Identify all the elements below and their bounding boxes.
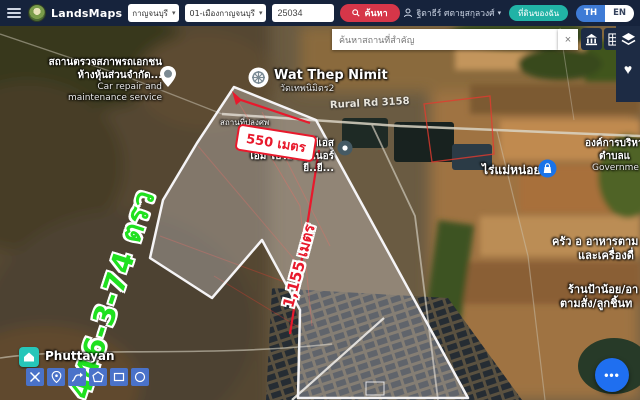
route-arrow-icon bbox=[71, 371, 83, 383]
heart-icon: ♥ bbox=[624, 61, 632, 77]
poi-gov-office[interactable]: องค์การบริหา ตำบลแ Governme bbox=[585, 138, 640, 174]
polygon-icon bbox=[92, 371, 104, 383]
rectangle-icon bbox=[113, 371, 125, 383]
language-toggle: TH EN bbox=[576, 5, 634, 22]
crossed-arrows-icon bbox=[29, 371, 41, 383]
poi-phuttayan[interactable]: Phuttayan bbox=[45, 349, 115, 364]
clear-search-button[interactable]: × bbox=[558, 29, 578, 50]
user-icon bbox=[403, 8, 413, 18]
map-side-panel: ♥ bbox=[616, 26, 640, 102]
poi-shop[interactable]: ร้านป้าน้อย/อา ตามสั่ง/ลูกชิ้นท bbox=[560, 283, 640, 311]
satellite-map-canvas[interactable]: สถานตรวจสภาพรถเอกชน ห้างหุ้นส่วนจำกัด...… bbox=[0, 26, 640, 400]
pin-tool-icon bbox=[51, 371, 62, 383]
lang-th-button[interactable]: TH bbox=[576, 5, 605, 22]
my-land-button[interactable]: ที่ดินของฉัน bbox=[509, 5, 568, 21]
route-tool-button[interactable] bbox=[68, 368, 86, 386]
landsmaps-logo bbox=[28, 4, 46, 22]
poi-car-service[interactable]: สถานตรวจสภาพรถเอกชน ห้างหุ้นส่วนจำกัด...… bbox=[30, 57, 162, 105]
rectangle-tool-button[interactable] bbox=[110, 368, 128, 386]
chevron-down-icon[interactable]: ▾ bbox=[498, 9, 502, 17]
layers-icon bbox=[621, 32, 636, 47]
layers-button[interactable] bbox=[621, 32, 636, 47]
circle-tool-button[interactable] bbox=[131, 368, 149, 386]
chevron-down-icon: ▾ bbox=[259, 9, 263, 17]
more-actions-fab[interactable]: ••• bbox=[595, 358, 629, 392]
district-select[interactable]: 01-เมืองกาญจนบุรี ▾ bbox=[185, 4, 266, 22]
shop-bag-icon[interactable] bbox=[538, 159, 557, 178]
search-button-label: ค้นหา bbox=[364, 6, 387, 20]
poi-wat-thep-nimit[interactable]: Wat Thep Nimit วัดเทพนิมิตร2 bbox=[274, 68, 388, 96]
header-right: ฐิตาธีร์ ศตายุสกุลวงศ์ ▾ ที่ดินของฉัน TH… bbox=[403, 5, 634, 22]
map-pin-icon[interactable] bbox=[160, 66, 176, 87]
temple-building-icon bbox=[585, 33, 598, 46]
marker-tool-button[interactable] bbox=[47, 368, 65, 386]
search-button[interactable]: ค้นหา bbox=[340, 4, 399, 22]
favorites-button[interactable]: ♥ bbox=[624, 61, 632, 77]
factory-pin-icon[interactable] bbox=[337, 140, 353, 156]
landsmaps-app: LandsMaps กาญจนบุรี ▾ 01-เมืองกาญจนบุรี … bbox=[0, 0, 640, 400]
poi-farm[interactable]: ไร่แม่หน่อย bbox=[482, 163, 540, 178]
search-icon bbox=[352, 9, 360, 17]
poi-kitchen[interactable]: ครัว อ อาหารตาม และเครื่องดื่ bbox=[552, 235, 640, 263]
polygon-tool-button[interactable] bbox=[89, 368, 107, 386]
hamburger-menu-icon[interactable] bbox=[7, 8, 21, 18]
measure-tool-button[interactable] bbox=[26, 368, 44, 386]
home-pin-icon bbox=[23, 351, 35, 363]
lang-en-button[interactable]: EN bbox=[605, 5, 634, 22]
top-bar: LandsMaps กาญจนบุรี ▾ 01-เมืองกาญจนบุรี … bbox=[0, 0, 640, 26]
parcel-number-input[interactable] bbox=[272, 4, 334, 22]
draw-toolbar bbox=[26, 368, 149, 386]
district-value: 01-เมืองกาญจนบุรี bbox=[189, 7, 254, 20]
place-search-input[interactable] bbox=[332, 29, 558, 50]
province-select[interactable]: กาญจนบุรี ▾ bbox=[128, 4, 179, 22]
temple-wheel-icon[interactable] bbox=[248, 67, 269, 88]
chevron-down-icon: ▾ bbox=[172, 9, 176, 17]
phuttayan-marker[interactable] bbox=[19, 347, 39, 367]
brand-title: LandsMaps bbox=[51, 7, 122, 20]
ellipsis-icon: ••• bbox=[604, 368, 620, 382]
province-value: กาญจนบุรี bbox=[132, 7, 168, 20]
user-name[interactable]: ฐิตาธีร์ ศตายุสกุลวงศ์ bbox=[417, 6, 495, 20]
circle-icon bbox=[134, 371, 146, 383]
gov-office-layer-button[interactable] bbox=[581, 28, 602, 50]
